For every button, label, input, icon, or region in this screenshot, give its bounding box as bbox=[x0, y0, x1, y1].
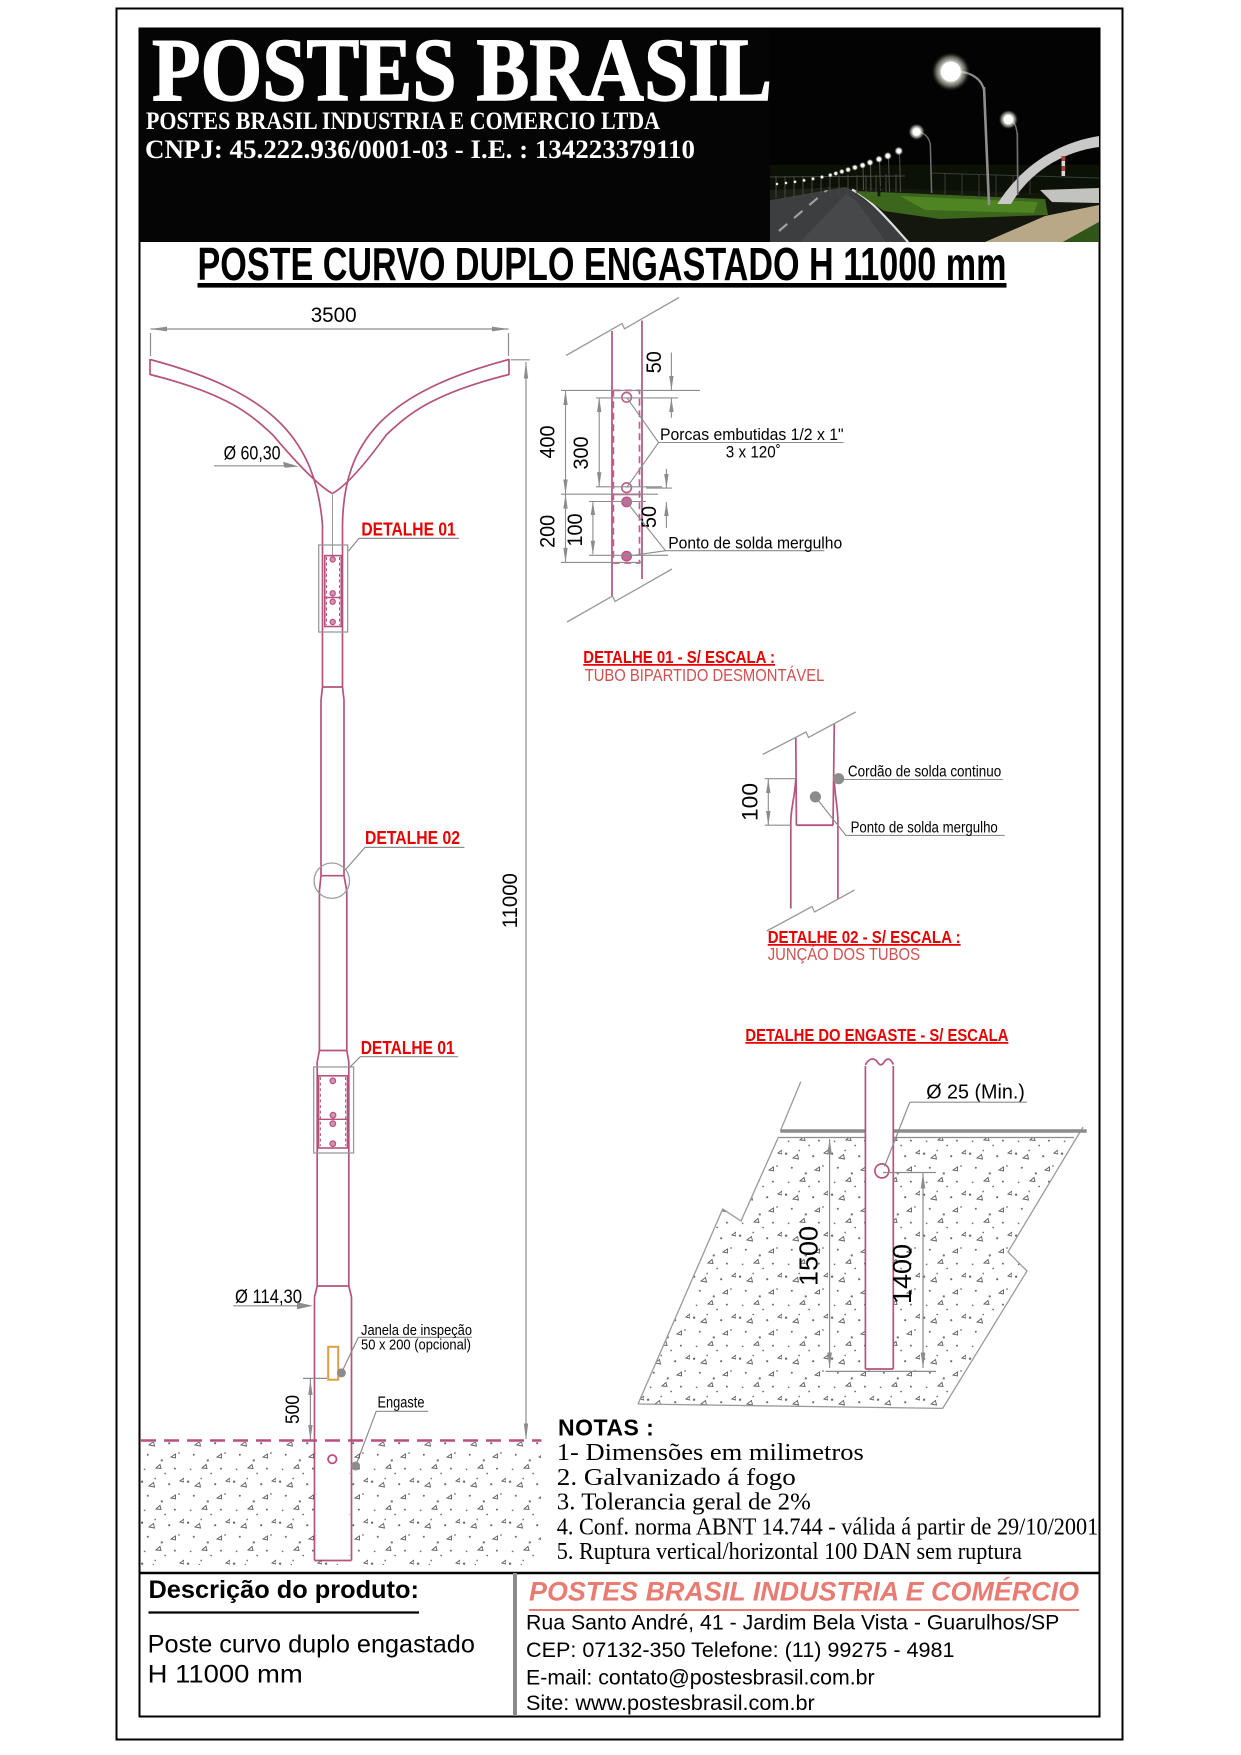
svg-text:3 x 120˚: 3 x 120˚ bbox=[726, 444, 781, 462]
svg-text:3500: 3500 bbox=[311, 304, 357, 327]
svg-text:100: 100 bbox=[564, 514, 587, 547]
svg-text:Ponto de solda mergulho: Ponto de solda mergulho bbox=[851, 820, 998, 837]
svg-text:DETALHE 01 - S/ ESCALA :: DETALHE 01 - S/ ESCALA : bbox=[583, 647, 775, 667]
svg-text:5. Ruptura vertical/horizontal: 5. Ruptura vertical/horizontal 100 DAN s… bbox=[557, 1539, 1022, 1565]
svg-text:400: 400 bbox=[537, 426, 560, 459]
svg-text:Ø 114,30: Ø 114,30 bbox=[235, 1287, 302, 1308]
svg-text:DETALHE 01: DETALHE 01 bbox=[361, 1038, 455, 1058]
svg-text:Poste curvo duplo engastado: Poste curvo duplo engastado bbox=[148, 1631, 475, 1659]
svg-text:500: 500 bbox=[283, 1395, 304, 1424]
svg-text:JUNÇÃO DOS TUBOS: JUNÇÃO DOS TUBOS bbox=[768, 943, 920, 964]
svg-text:DETALHE 01: DETALHE 01 bbox=[361, 520, 455, 540]
svg-text:NOTAS :: NOTAS : bbox=[558, 1415, 654, 1441]
svg-text:50: 50 bbox=[643, 351, 666, 373]
svg-text:100: 100 bbox=[738, 783, 763, 821]
svg-text:Rua Santo André, 41 - Jardim B: Rua Santo André, 41 - Jardim Bela Vista … bbox=[526, 1611, 1059, 1635]
svg-text:4. Conf. norma ABNT 14.744 - v: 4. Conf. norma ABNT 14.744 - válida á pa… bbox=[557, 1514, 1099, 1540]
svg-text:TUBO BIPARTIDO DESMONTÁVEL: TUBO BIPARTIDO DESMONTÁVEL bbox=[585, 665, 825, 685]
svg-text:Ø 60,30: Ø 60,30 bbox=[224, 444, 281, 465]
svg-text:CNPJ: 45.222.936/0001-03 - I.E: CNPJ: 45.222.936/0001-03 - I.E. : 134223… bbox=[145, 135, 695, 164]
svg-text:CEP: 07132-350 Telefone: (11): CEP: 07132-350 Telefone: (11) 99275 - 49… bbox=[526, 1638, 955, 1662]
svg-text:1400: 1400 bbox=[887, 1244, 917, 1304]
svg-text:E-mail: contato@postesbrasil.c: E-mail: contato@postesbrasil.com.br bbox=[526, 1666, 875, 1690]
svg-text:Engaste: Engaste bbox=[378, 1395, 425, 1412]
svg-text:DETALHE DO ENGASTE - S/ ESCALA: DETALHE DO ENGASTE - S/ ESCALA bbox=[745, 1025, 1008, 1045]
svg-text:2. Galvanizado á fogo: 2. Galvanizado á fogo bbox=[557, 1465, 796, 1491]
svg-text:POSTES BRASIL INDUSTRIA E COME: POSTES BRASIL INDUSTRIA E COMERCIO LTDA bbox=[146, 108, 660, 135]
svg-text:200: 200 bbox=[537, 515, 560, 548]
svg-text:300: 300 bbox=[570, 437, 593, 470]
svg-text:50: 50 bbox=[638, 506, 661, 528]
svg-text:Ponto de solda mergulho: Ponto de solda mergulho bbox=[668, 535, 842, 553]
svg-text:3. Tolerancia geral de 2%: 3. Tolerancia geral de 2% bbox=[557, 1490, 811, 1516]
svg-text:Cordão de solda continuo: Cordão de solda continuo bbox=[848, 764, 1001, 781]
svg-text:H 11000 mm: H 11000 mm bbox=[148, 1661, 303, 1689]
svg-text:POSTES BRASIL: POSTES BRASIL bbox=[152, 21, 772, 120]
svg-text:11000: 11000 bbox=[499, 873, 522, 928]
svg-text:Site: www.postesbrasil.com.br: Site: www.postesbrasil.com.br bbox=[526, 1691, 815, 1715]
svg-text:DETALHE 02: DETALHE 02 bbox=[365, 828, 460, 848]
svg-text:POSTE CURVO DUPLO ENGASTADO H: POSTE CURVO DUPLO ENGASTADO H 11000 mm bbox=[198, 238, 1007, 290]
svg-text:Porcas embutidas 1/2 x 1": Porcas embutidas 1/2 x 1" bbox=[660, 426, 844, 444]
svg-text:Ø 25 (Min.): Ø 25 (Min.) bbox=[926, 1081, 1025, 1104]
svg-text:1500: 1500 bbox=[794, 1226, 824, 1286]
svg-text:50 x 200 (opcional): 50 x 200 (opcional) bbox=[361, 1337, 471, 1354]
svg-text:POSTES BRASIL INDUSTRIA E COMÉ: POSTES BRASIL INDUSTRIA E COMÉRCIO bbox=[529, 1576, 1079, 1607]
svg-text:1- Dimensões em milimetros: 1- Dimensões em milimetros bbox=[557, 1440, 864, 1466]
svg-text:Descrição do produto:: Descrição do produto: bbox=[149, 1576, 419, 1604]
